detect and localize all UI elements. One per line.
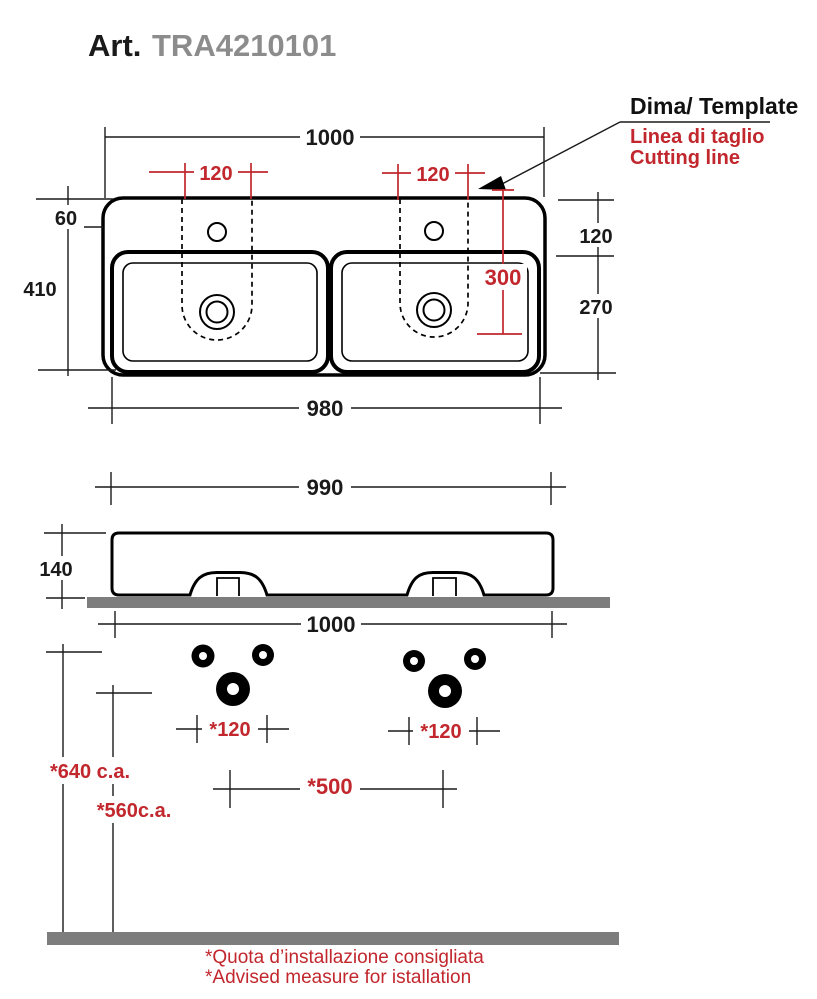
article-label: Art. <box>88 28 141 63</box>
mounting-surface-bar <box>87 597 610 608</box>
dim-label-faucet-span-right: 120 <box>416 164 449 186</box>
floor-bar <box>47 932 619 945</box>
dim-label-hole-span-left: *120 <box>209 719 250 741</box>
dim-label-side-width-top: 990 <box>307 475 344 500</box>
dim-label-cut-depth: 300 <box>485 265 522 290</box>
dim-label-hole-centers: *500 <box>307 774 352 799</box>
template-heading: Dima/ Template <box>630 93 798 119</box>
dim-label-side-width-bottom: 1000 <box>307 612 356 637</box>
cutting-line-label-it: Linea di taglio <box>630 126 764 148</box>
page-title: Art. TRA4210101 <box>88 28 336 63</box>
top-view <box>36 127 616 424</box>
fixing-hole-center <box>410 657 418 665</box>
technical-drawing-page: Art. TRA4210101 Dima/ Template Linea di … <box>0 0 817 999</box>
footer-note-en: *Advised measure for istallation <box>205 967 471 988</box>
drain-hole-center <box>439 685 451 697</box>
dim-label-lower-height: *560c.a. <box>97 800 172 822</box>
left-basin <box>112 252 328 372</box>
dim-upper-height <box>46 644 102 932</box>
mounting-notch-left <box>217 578 239 596</box>
sink-side-profile <box>112 533 553 595</box>
mounting-notch-right <box>433 578 456 596</box>
fixing-hole-center <box>199 652 207 660</box>
fixing-holes-left <box>192 644 275 706</box>
leader-arrowhead-icon <box>478 176 506 190</box>
dim-label-hole-span-right: *120 <box>420 721 461 743</box>
fixing-hole-center <box>259 651 267 659</box>
article-code: TRA4210101 <box>152 28 336 63</box>
dim-label-side-height: 140 <box>39 559 72 581</box>
footer-notes: *Quota d’installazione consigliata *Advi… <box>205 947 484 988</box>
template-note: Dima/ Template Linea di taglio Cutting l… <box>478 93 798 190</box>
dim-label-overall-depth: 410 <box>23 279 56 301</box>
footer-note-it: *Quota d’installazione consigliata <box>205 947 484 968</box>
fixing-holes-right <box>403 648 486 708</box>
fixing-hole-center <box>471 655 479 663</box>
cutting-line-label-en: Cutting line <box>630 147 740 169</box>
dim-right-side <box>540 192 616 380</box>
leader-line <box>502 122 620 184</box>
dim-label-width-bottom: 980 <box>307 396 344 421</box>
dim-label-edge-to-faucet: 60 <box>55 208 77 230</box>
dim-label-rim-to-basin: 120 <box>579 226 612 248</box>
dim-label-width-top: 1000 <box>306 125 355 150</box>
dim-label-upper-height: *640 c.a. <box>50 761 130 783</box>
dim-label-faucet-span-left: 120 <box>199 163 232 185</box>
drawing-canvas: Art. TRA4210101 Dima/ Template Linea di … <box>0 0 817 999</box>
drain-hole-center <box>227 683 239 695</box>
dim-label-basin-depth: 270 <box>579 297 612 319</box>
